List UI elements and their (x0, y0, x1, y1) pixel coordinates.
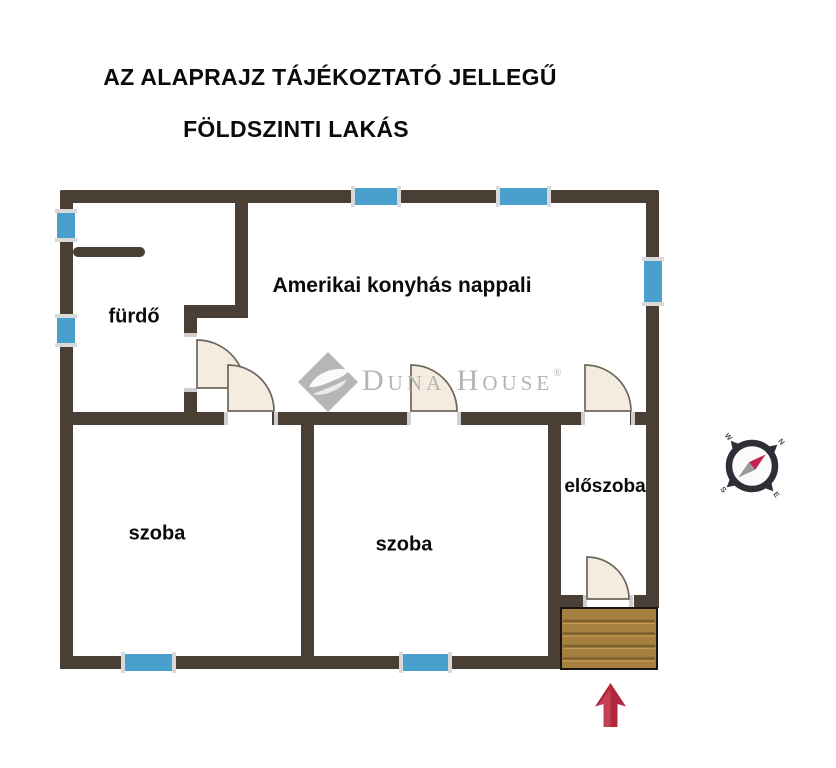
window-icon (355, 188, 397, 205)
wall-segment (561, 595, 583, 608)
door-jamb (184, 388, 197, 392)
wordmark-word1: Duna (362, 364, 445, 397)
window-cap (448, 652, 452, 673)
door-jamb (184, 333, 197, 337)
window-cap (121, 652, 125, 673)
window-cap (642, 302, 664, 306)
walls (60, 190, 659, 669)
door-jamb (631, 412, 635, 425)
compass-label-e: E (771, 490, 781, 500)
dunahouse-logo-icon (298, 352, 358, 412)
wall-segment (60, 412, 228, 425)
room-label-hall: előszoba (564, 476, 645, 498)
compass-label-n: N (776, 437, 786, 447)
window-icon (500, 188, 547, 205)
wall-segment (272, 412, 411, 425)
window-icon (644, 261, 662, 302)
door-jamb (274, 412, 278, 425)
window-cap (642, 257, 664, 261)
door-jamb (581, 412, 585, 425)
window-cap (351, 186, 355, 207)
wordmark-word2: House (457, 364, 554, 397)
compass-label-s: S (718, 485, 728, 495)
window-cap (172, 652, 176, 673)
wall-segment (457, 412, 585, 425)
door-jamb (457, 412, 461, 425)
room-label-bathroom: fürdő (108, 306, 159, 329)
window-cap (547, 186, 551, 207)
entrance-arrow-icon (595, 683, 626, 727)
wall-segment (548, 412, 561, 669)
wall-segment (60, 190, 73, 669)
window-icon (125, 654, 172, 671)
window-cap (397, 186, 401, 207)
window-icon (57, 318, 75, 343)
wall-segment (184, 305, 248, 318)
floorplan-page: AZ ALAPRAJZ TÁJÉKOZTATÓ JELLEGŰ FÖLDSZIN… (0, 0, 836, 768)
room-label-room1: szoba (129, 523, 186, 546)
window-icon (57, 213, 75, 238)
room-label-room2: szoba (376, 534, 433, 557)
window-cap (399, 652, 403, 673)
window-cap (496, 186, 500, 207)
window-cap (55, 209, 77, 213)
registered-mark: ® (553, 367, 561, 379)
room1-door-icon (228, 365, 274, 411)
window-cap (55, 314, 77, 318)
wall-segment (301, 425, 314, 656)
wall-segment (646, 190, 659, 608)
dunahouse-wordmark: Duna House® (362, 364, 562, 398)
steps-base (561, 608, 657, 669)
window-cap (55, 343, 77, 347)
door-jamb (224, 412, 228, 425)
wall-segment (634, 595, 659, 608)
wall-segment-bathroom-stub (73, 247, 145, 257)
wall-segment (235, 190, 248, 318)
hall-door-icon (585, 365, 631, 411)
entrance-door-icon (587, 557, 629, 599)
compass-label-w: W (723, 431, 735, 443)
door-jamb (407, 412, 411, 425)
room-label-living: Amerikai konyhás nappali (272, 274, 531, 298)
entrance-steps (561, 608, 657, 669)
window-cap (55, 238, 77, 242)
window-icon (403, 654, 448, 671)
compass-icon: N E S W (718, 431, 786, 499)
